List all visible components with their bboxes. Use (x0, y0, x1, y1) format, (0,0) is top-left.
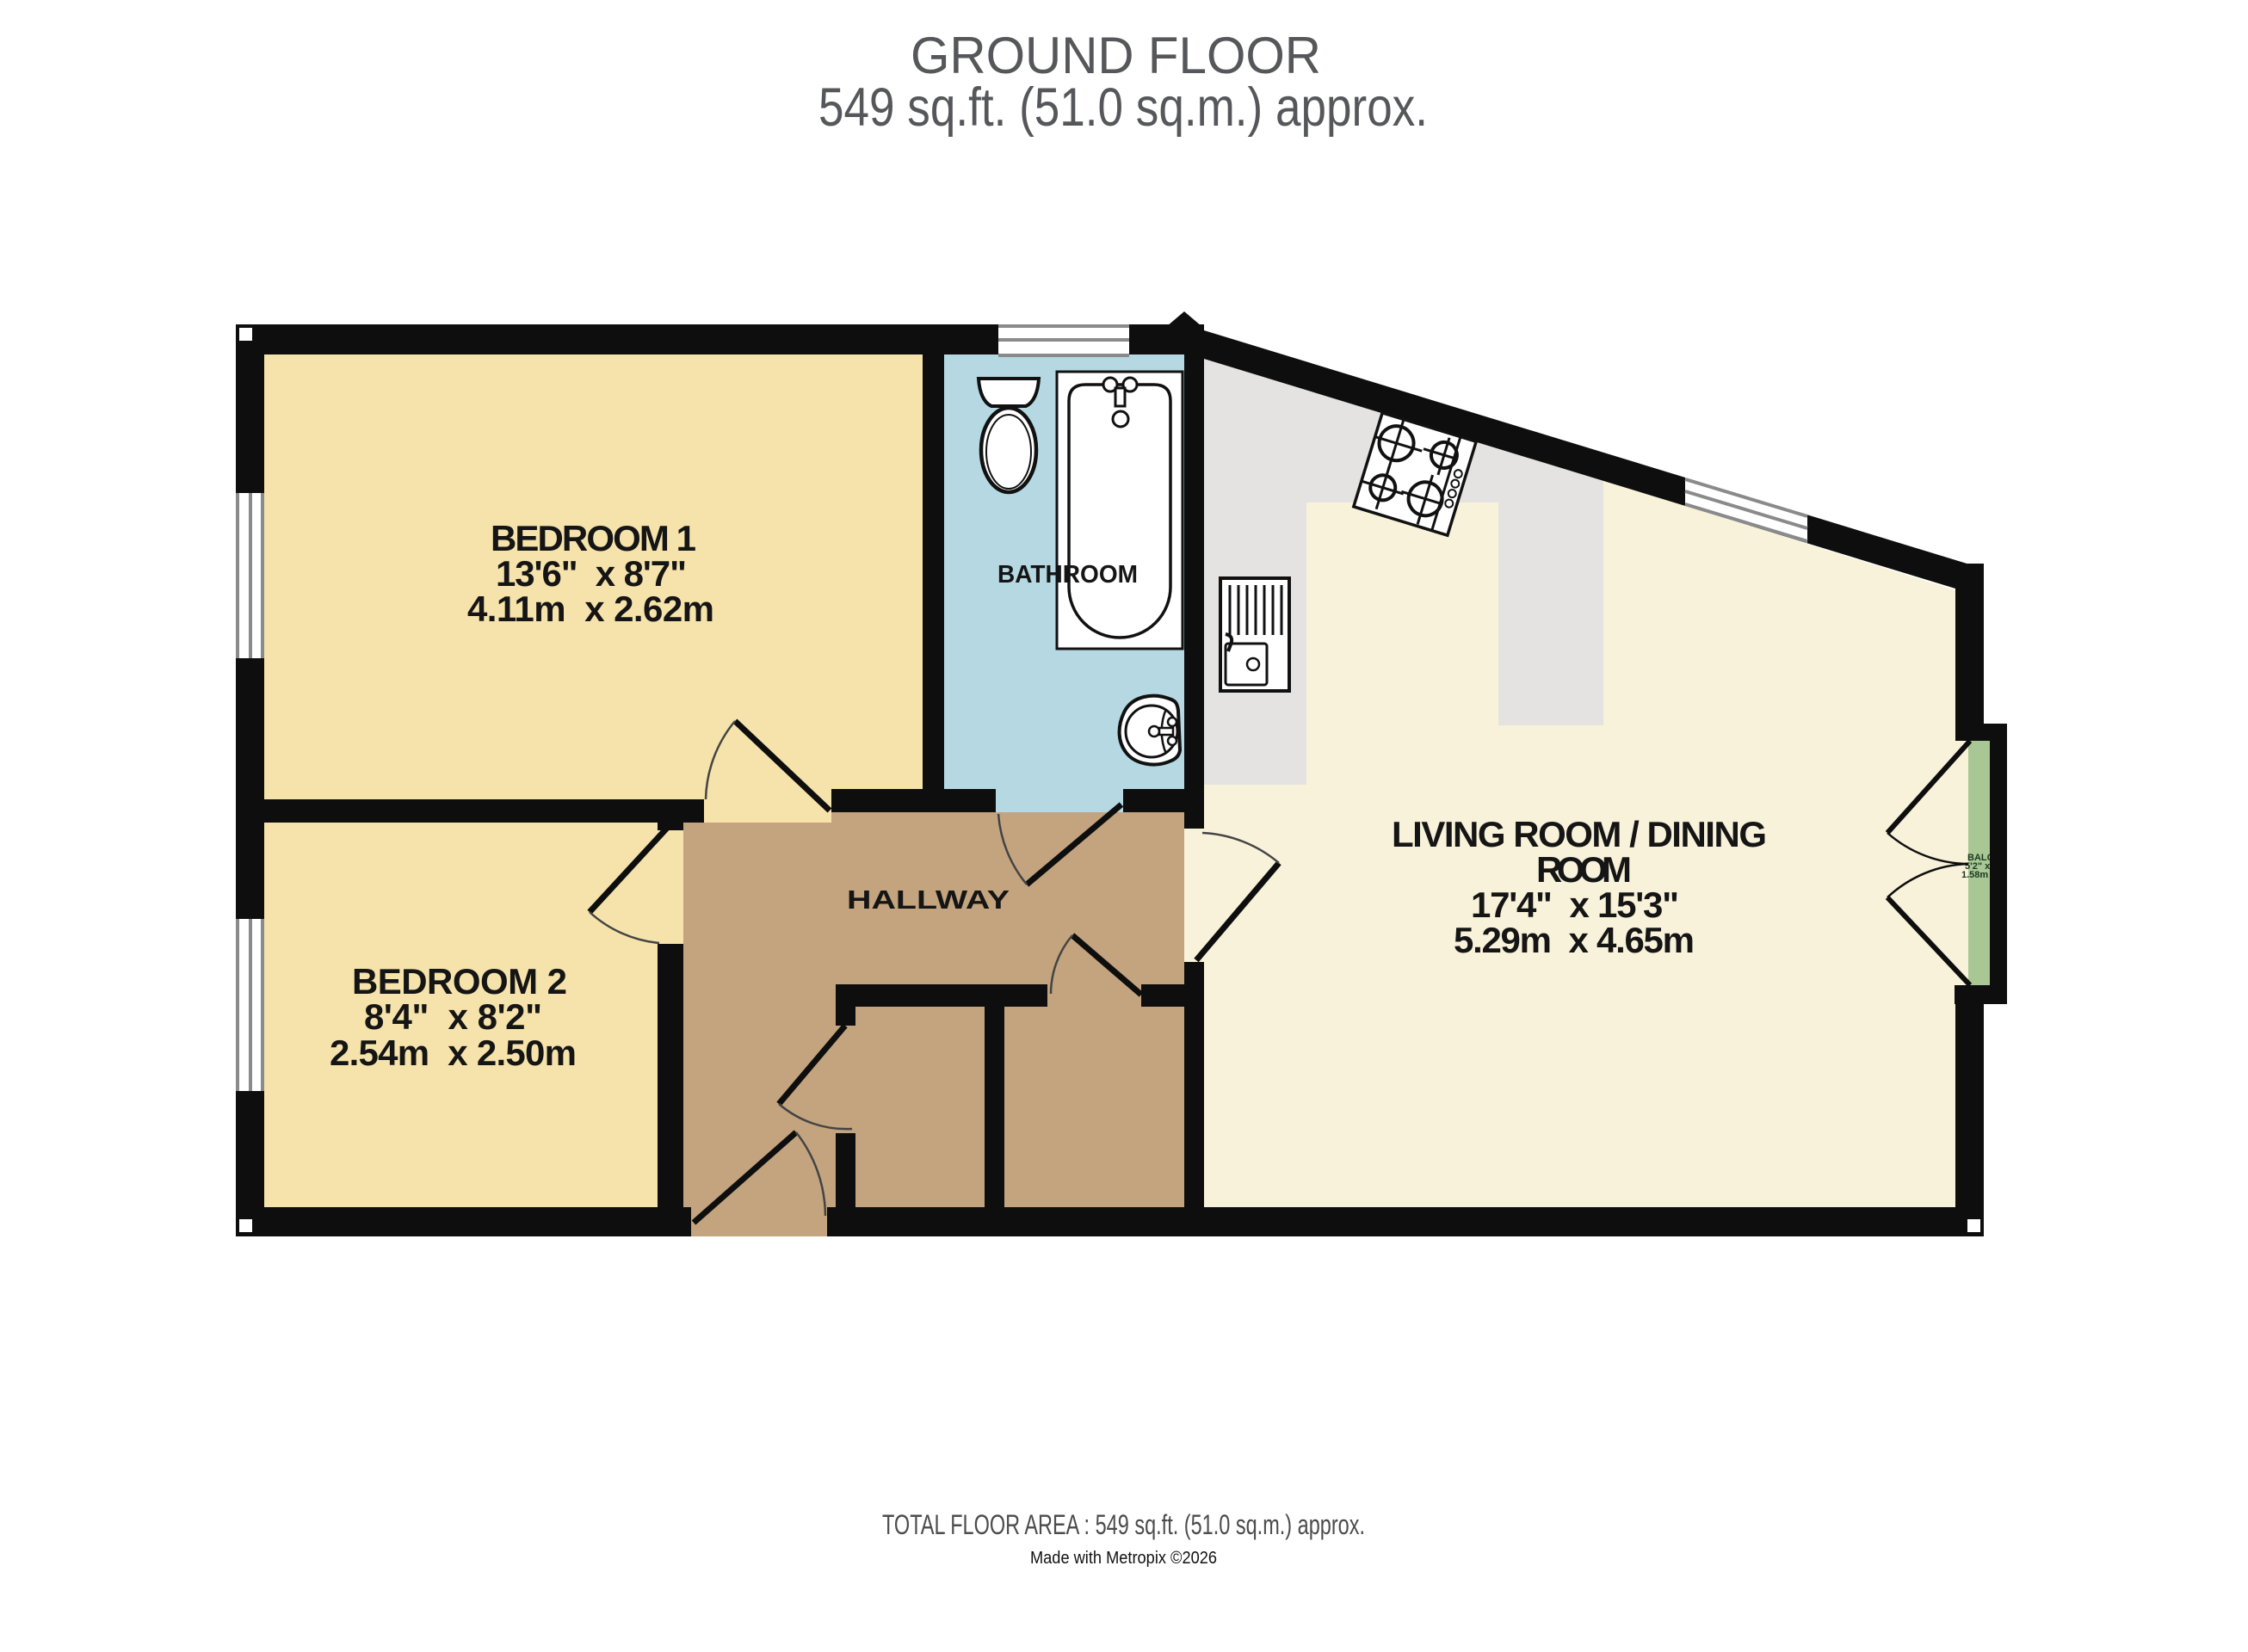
svg-text:GROUND FLOOR: GROUND FLOOR (911, 27, 1321, 84)
svg-text:17'4" x 15'3": 17'4" x 15'3" (1471, 885, 1679, 925)
svg-text:BEDROOM 1: BEDROOM 1 (491, 518, 696, 558)
svg-text:LIVING ROOM / DINING: LIVING ROOM / DINING (1392, 814, 1767, 854)
svg-text:HALLWAY: HALLWAY (847, 885, 1010, 915)
svg-text:ROOM: ROOM (1536, 849, 1632, 890)
svg-text:8'4" x 8'2": 8'4" x 8'2" (364, 996, 542, 1037)
svg-text:2.54m x 2.50m: 2.54m x 2.50m (330, 1032, 577, 1073)
svg-text:BEDROOM 2: BEDROOM 2 (352, 961, 567, 1002)
svg-text:TOTAL FLOOR AREA : 549 sq.ft.: TOTAL FLOOR AREA : 549 sq.ft. (51.0 sq.m… (882, 1509, 1365, 1540)
svg-text:5.29m x 4.65m: 5.29m x 4.65m (1454, 920, 1695, 960)
svg-text:4.11m x 2.62m: 4.11m x 2.62m (467, 589, 714, 629)
svg-text:Made with Metropix ©2026: Made with Metropix ©2026 (1030, 1549, 1217, 1568)
svg-text:13'6" x 8'7": 13'6" x 8'7" (496, 553, 687, 594)
svg-text:549 sq.ft. (51.0 sq.m.) approx: 549 sq.ft. (51.0 sq.m.) approx. (818, 77, 1428, 138)
svg-text:BATHROOM: BATHROOM (997, 561, 1138, 589)
